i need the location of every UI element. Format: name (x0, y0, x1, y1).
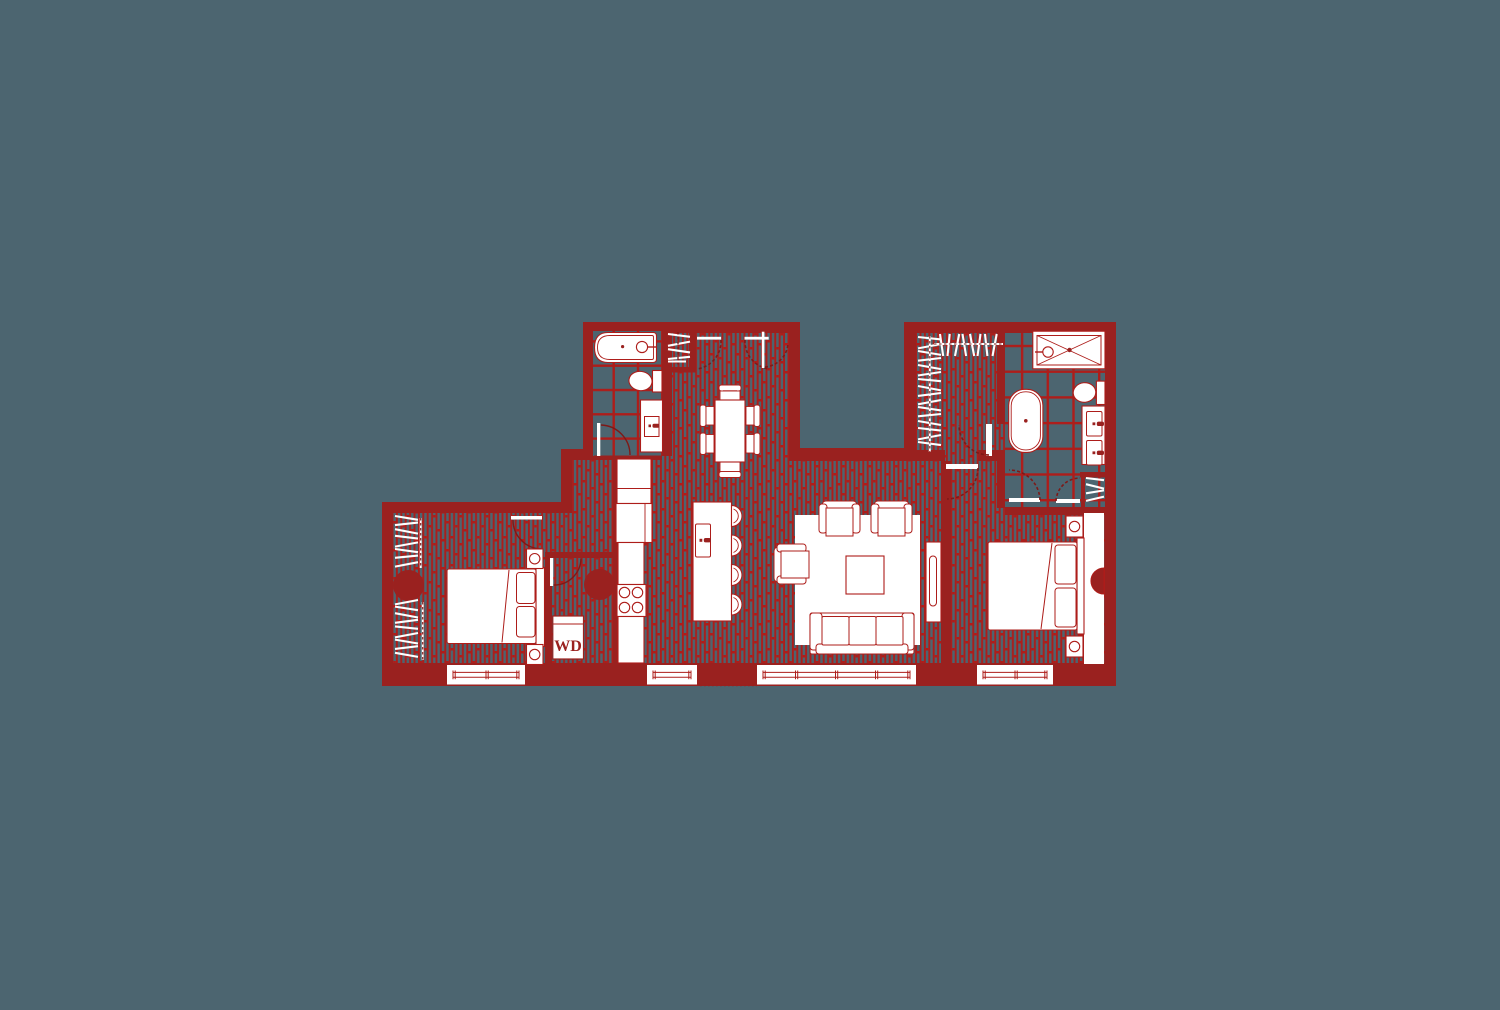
svg-text:WD: WD (554, 638, 582, 655)
